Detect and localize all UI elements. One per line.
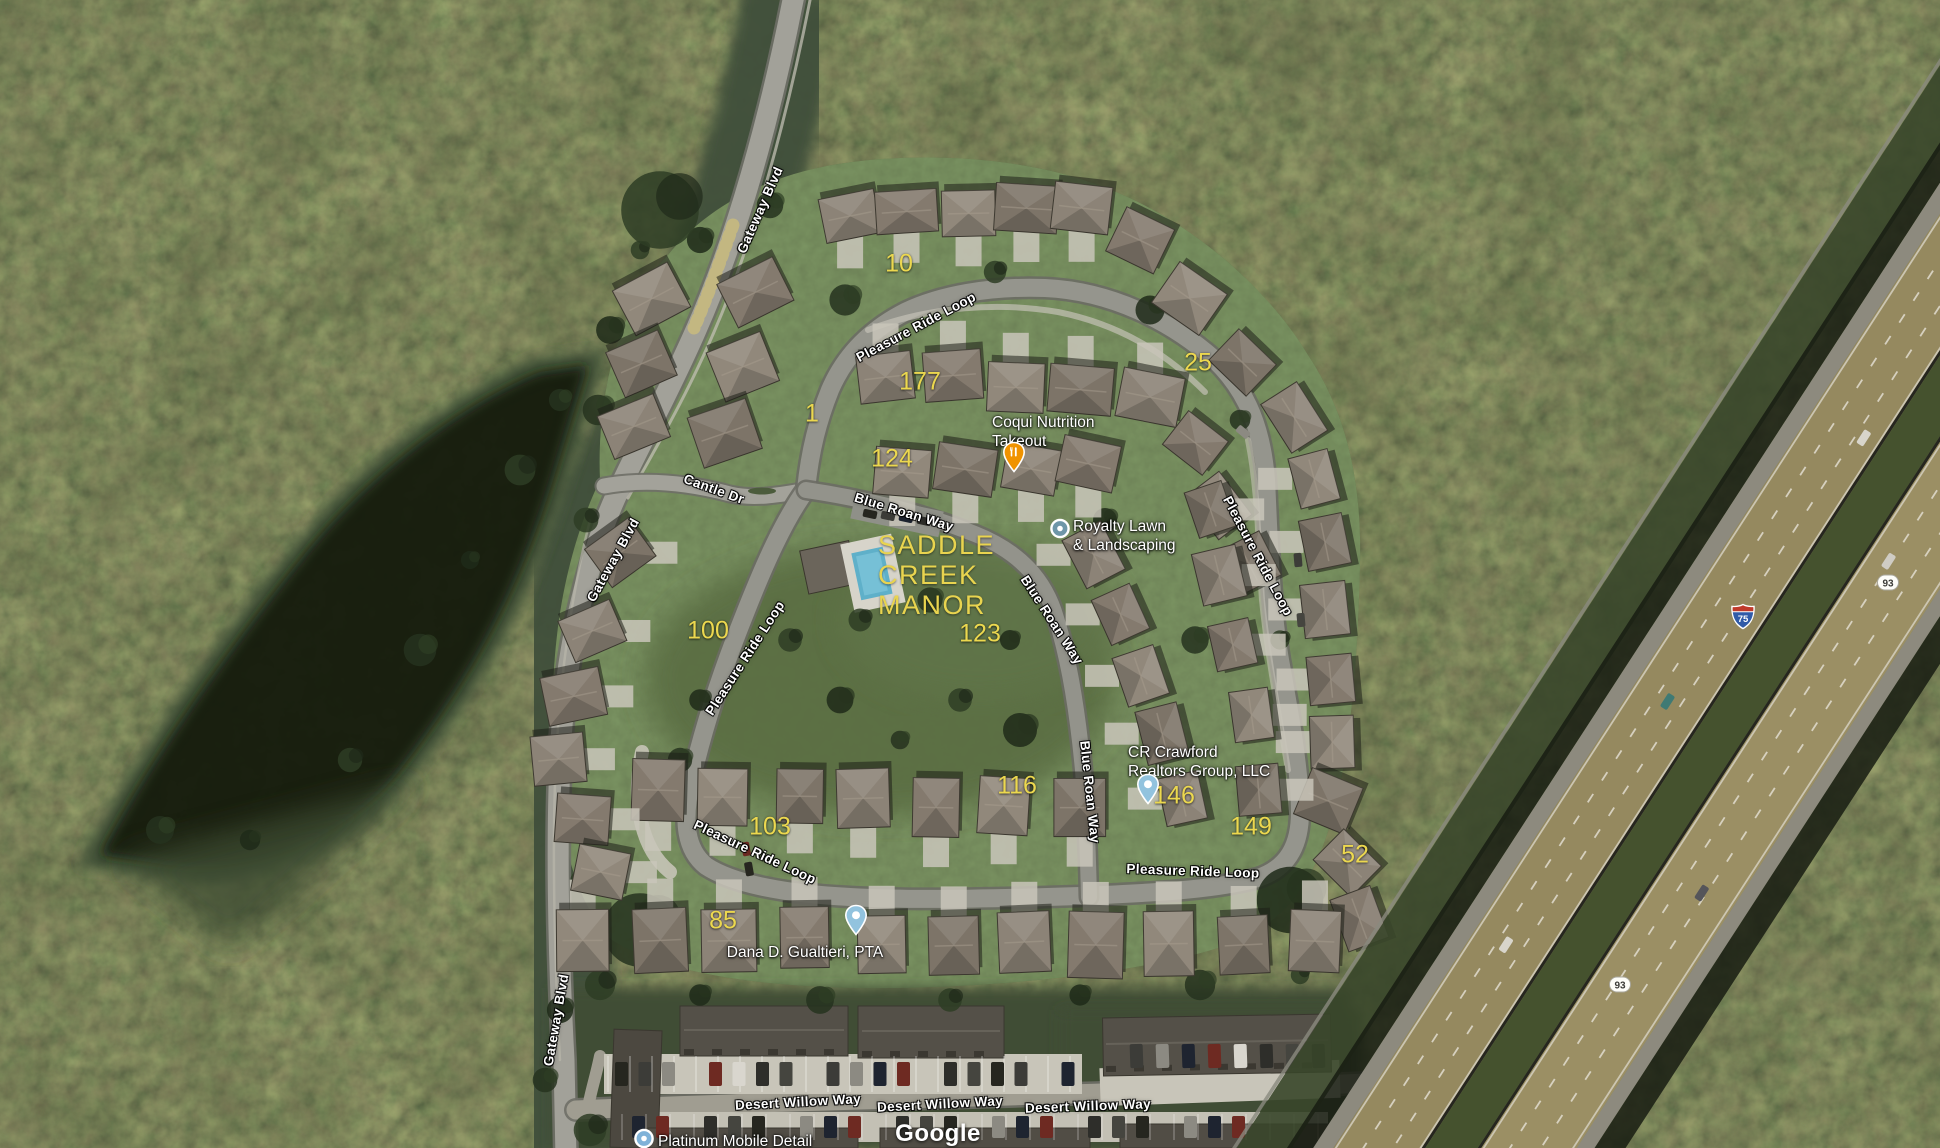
road-label: Desert Willow Way: [1025, 1096, 1152, 1115]
place-pin-icon[interactable]: [1002, 441, 1026, 478]
community-title: SADDLE CREEK MANOR: [878, 530, 995, 620]
lot-number-label: 123: [959, 620, 1001, 649]
road-label: Pleasure Ride Loop: [854, 289, 979, 365]
lot-number-label: 124: [871, 445, 913, 474]
road-label: Blue Roan Way: [853, 490, 956, 534]
business-label[interactable]: Platinum Mobile Detail: [658, 1133, 812, 1148]
svg-text:93: 93: [1614, 981, 1626, 992]
road-label: Pleasure Ride Loop: [1220, 494, 1296, 619]
place-pin-icon[interactable]: [1136, 773, 1160, 810]
road-label: Gateway Blvd: [734, 164, 786, 255]
road-label: Desert Willow Way: [735, 1091, 862, 1113]
road-label: Blue Roan Way: [1018, 573, 1087, 668]
road-label: Desert Willow Way: [877, 1093, 1004, 1115]
google-logo[interactable]: Google: [895, 1120, 981, 1148]
lot-number-label: 52: [1341, 841, 1369, 870]
route-93-shield-icon: 93: [1609, 976, 1632, 998]
lot-number-label: 177: [899, 368, 941, 397]
lot-number-label: 149: [1230, 813, 1272, 842]
road-label: Gateway Blvd: [541, 973, 572, 1068]
lot-number-label: 85: [709, 907, 737, 936]
road-label: Blue Roan Way: [1077, 740, 1103, 844]
lot-number-label: 10: [885, 250, 913, 279]
place-dot-icon[interactable]: [632, 1127, 656, 1148]
interstate-75-shield-icon: 75: [1731, 603, 1756, 635]
business-label[interactable]: Dana D. Gualtieri, PTA: [727, 944, 884, 963]
lot-number-label: 25: [1184, 349, 1212, 378]
lot-number-label: 100: [687, 617, 729, 646]
road-label: Gateway Blvd: [584, 516, 642, 605]
place-pin-icon[interactable]: [844, 904, 868, 941]
lot-number-label: 116: [997, 772, 1037, 801]
svg-text:93: 93: [1882, 579, 1894, 590]
route-93-shield-icon: 93: [1877, 574, 1900, 596]
lot-number-label: 1: [805, 400, 819, 429]
lot-number-label: 103: [749, 813, 791, 842]
road-label: Cantle Dr: [682, 471, 747, 507]
business-label[interactable]: Royalty Lawn& Landscaping: [1073, 518, 1176, 555]
svg-text:75: 75: [1738, 614, 1749, 625]
road-label: Pleasure Ride Loop: [1126, 861, 1260, 881]
place-dot-icon[interactable]: [1048, 517, 1072, 546]
map-canvas[interactable]: SADDLE CREEK MANOR Google Gateway BlvdGa…: [0, 0, 1940, 1148]
